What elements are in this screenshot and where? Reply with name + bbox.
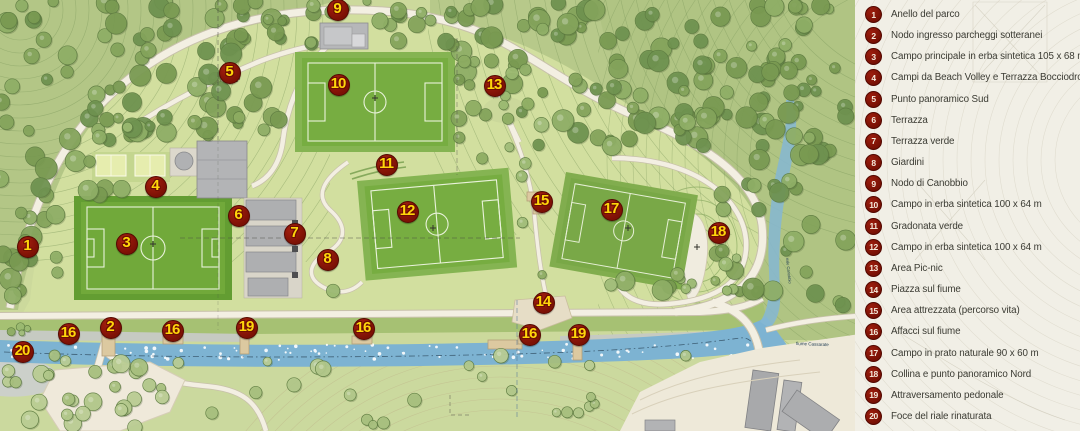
- legend-label: Affacci sul fiume: [891, 326, 960, 337]
- legend-label: Nodo ingresso parcheggi sotteranei: [891, 30, 1042, 41]
- legend-number-badge: 2: [865, 27, 882, 44]
- legend-number-badge: 11: [865, 218, 882, 235]
- legend-number-badge: 9: [865, 175, 882, 192]
- legend-number-badge: 10: [865, 196, 882, 213]
- legend-number-badge: 12: [865, 239, 882, 256]
- legend-label: Attraversamento pedonale: [891, 390, 1004, 401]
- legend-item: 13 Area Pic-nic: [865, 261, 1076, 276]
- park-masterplan: fiume Cassarate riale Canobbio 1 2 3 4 5…: [0, 0, 1080, 431]
- legend-label: Punto panoramico Sud: [891, 94, 989, 105]
- legend-number-badge: 20: [865, 408, 882, 425]
- legend-number-badge: 4: [865, 69, 882, 86]
- legend-item: 4 Campi da Beach Volley e Terrazza Bocci…: [865, 70, 1076, 85]
- legend-item: 12 Campo in erba sintetica 100 x 64 m: [865, 240, 1076, 255]
- legend-item: 16 Affacci sul fiume: [865, 324, 1076, 339]
- legend-label: Nodo di Canobbio: [891, 178, 968, 189]
- legend-item: 9 Nodo di Canobbio: [865, 176, 1076, 191]
- legend-number-badge: 6: [865, 112, 882, 129]
- legend-number-badge: 17: [865, 345, 882, 362]
- legend-label: Campo in erba sintetica 100 x 64 m: [891, 199, 1042, 210]
- legend-number-badge: 16: [865, 323, 882, 340]
- legend-label: Giardini: [891, 157, 924, 168]
- legend-label: Campi da Beach Volley e Terrazza Bocciod…: [891, 72, 1080, 83]
- legend-item: 10 Campo in erba sintetica 100 x 64 m: [865, 197, 1076, 212]
- legend-number-badge: 3: [865, 48, 882, 65]
- legend-item: 11 Gradonata verde: [865, 219, 1076, 234]
- legend-item: 1 Anello del parco: [865, 7, 1076, 22]
- field-3-main: [74, 196, 232, 300]
- building-main-block: [197, 141, 247, 198]
- legend-item: 14 Piazza sul fiume: [865, 282, 1076, 297]
- legend-label: Piazza sul fiume: [891, 284, 961, 295]
- legend-label: Foce del riale rinaturata: [891, 411, 991, 422]
- legend-number-badge: 18: [865, 366, 882, 383]
- legend-item: 7 Terrazza verde: [865, 134, 1076, 149]
- legend-item: 5 Punto panoramico Sud: [865, 92, 1076, 107]
- legend-panel: 1 Anello del parco 2 Nodo ingresso parch…: [855, 0, 1080, 431]
- legend-item: 19 Attraversamento pedonale: [865, 388, 1076, 403]
- legend-label: Terrazza: [891, 115, 928, 126]
- building-terraces: [244, 198, 302, 298]
- legend-number-badge: 8: [865, 154, 882, 171]
- legend-label: Collina e punto panoramico Nord: [891, 369, 1031, 380]
- legend-label: Campo in prato naturale 90 x 60 m: [891, 348, 1039, 359]
- legend-label: Campo in erba sintetica 100 x 64 m: [891, 242, 1042, 253]
- legend-item: 6 Terrazza: [865, 113, 1076, 128]
- legend-item: 3 Campo principale in erba sintetica 105…: [865, 49, 1076, 64]
- legend-item: 8 Giardini: [865, 155, 1076, 170]
- building-bocciodromo: [170, 148, 198, 176]
- legend-number-badge: 14: [865, 281, 882, 298]
- beach-volley-courts: [92, 152, 170, 182]
- legend-number-badge: 5: [865, 91, 882, 108]
- legend-label: Anello del parco: [891, 9, 960, 20]
- building-north: [320, 23, 368, 49]
- legend-label: Area attrezzata (percorso vita): [891, 305, 1020, 316]
- legend-item: 15 Area attrezzata (percorso vita): [865, 303, 1076, 318]
- legend-label: Gradonata verde: [891, 221, 963, 232]
- legend-label: Area Pic-nic: [891, 263, 943, 274]
- legend-number-badge: 19: [865, 387, 882, 404]
- field-10: [295, 52, 455, 152]
- field-12: [357, 168, 517, 281]
- legend-item: 2 Nodo ingresso parcheggi sotteranei: [865, 28, 1076, 43]
- legend-label: Terrazza verde: [891, 136, 954, 147]
- legend-list: 1 Anello del parco 2 Nodo ingresso parch…: [855, 0, 1080, 431]
- legend-number-badge: 7: [865, 133, 882, 150]
- legend-number-badge: 13: [865, 260, 882, 277]
- legend-item: 18 Collina e punto panoramico Nord: [865, 367, 1076, 382]
- legend-number-badge: 15: [865, 302, 882, 319]
- legend-number-badge: 1: [865, 6, 882, 23]
- legend-item: 20 Foce del riale rinaturata: [865, 409, 1076, 424]
- legend-label: Campo principale in erba sintetica 105 x…: [891, 51, 1080, 62]
- legend-item: 17 Campo in prato naturale 90 x 60 m: [865, 346, 1076, 361]
